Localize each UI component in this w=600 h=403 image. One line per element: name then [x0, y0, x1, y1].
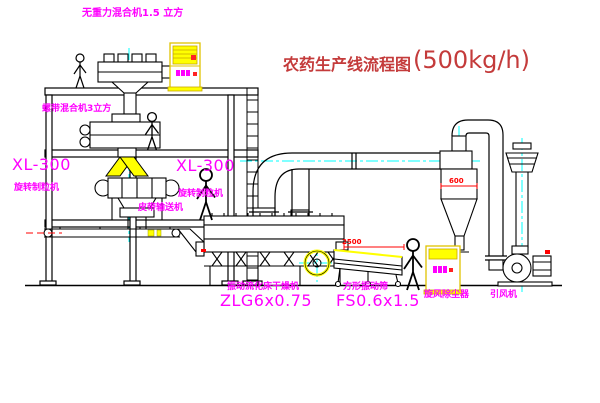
label-granulator-left-name: 旋转制粒机	[14, 184, 59, 193]
diagram-title: 农药生产线流程图 (500kg/h)	[283, 46, 530, 75]
label-belt-conveyor: 皮带输送机	[138, 204, 183, 213]
dim-cyclone-diameter: 600	[449, 177, 464, 185]
label-ribbon-mixer: 螺带混合机3立方	[42, 105, 111, 114]
worker-top-floor	[74, 54, 86, 88]
fan-red-mark	[545, 250, 550, 254]
cyclone	[440, 136, 477, 252]
control-cabinet-top	[168, 43, 202, 91]
conveyor-detail-yellow2	[157, 230, 161, 236]
label-dryer-model: ZLG6x0.75	[220, 293, 312, 309]
dim-sieve-length: 2500	[342, 238, 361, 246]
label-fan: 引风机	[490, 291, 517, 300]
flow-diagram-canvas: 农药生产线流程图 (500kg/h) 无重力混合机1.5 立方 螺带混合机3立方…	[0, 0, 600, 403]
worker-ground-right	[404, 239, 422, 290]
control-cabinet-ground	[424, 246, 462, 294]
label-granulator-center-name: 旋转制粒机	[178, 190, 223, 199]
title-capacity: (500kg/h)	[413, 46, 530, 74]
label-granulator-left-model: XL-300	[12, 157, 71, 173]
draft-fan	[489, 246, 552, 286]
ladder-column	[247, 88, 258, 285]
label-granulator-center-model: XL-300	[176, 158, 235, 174]
label-cyclone: 旋风除尘器	[424, 291, 469, 300]
label-sieve-model: FS0.6x1.5	[336, 293, 420, 309]
dryer-red-mark	[201, 249, 206, 252]
conveyor-detail-yellow	[148, 230, 154, 236]
y-duct	[106, 157, 148, 176]
exhaust-duct	[249, 153, 472, 216]
label-gravity-mixer: 无重力混合机1.5 立方	[82, 9, 183, 19]
title-chinese: 农药生产线流程图	[283, 46, 411, 75]
